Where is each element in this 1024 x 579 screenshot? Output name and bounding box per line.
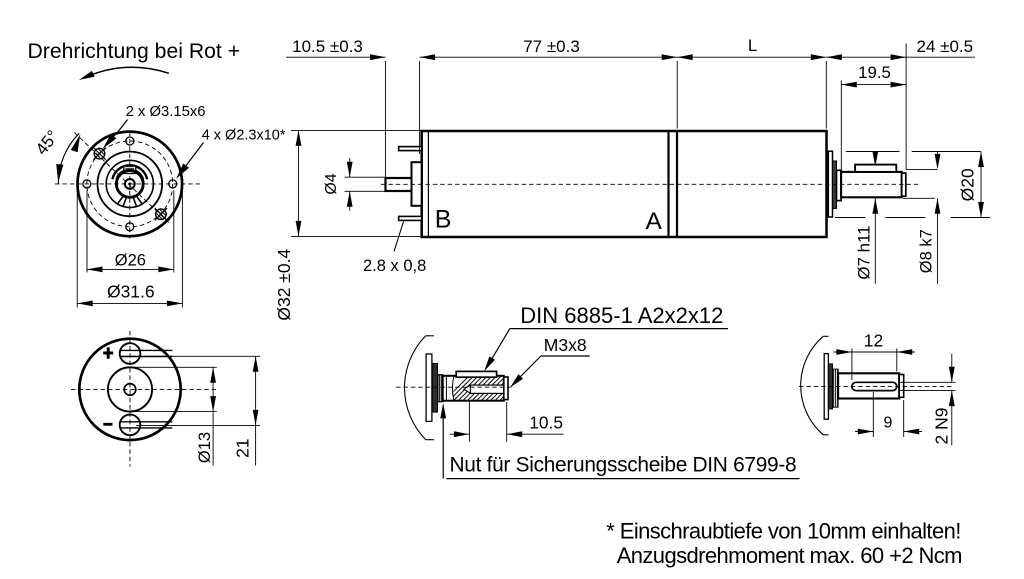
svg-text:2 N9: 2 N9 [932, 408, 952, 445]
svg-text:4 x Ø2.3x10*: 4 x Ø2.3x10* [202, 128, 286, 144]
svg-text:10.5 ±0.3: 10.5 ±0.3 [292, 37, 363, 56]
svg-text:24 ±0.5: 24 ±0.5 [916, 37, 973, 56]
svg-text:DIN 6885-1 A2x2x12: DIN 6885-1 A2x2x12 [520, 303, 723, 328]
svg-text:19.5: 19.5 [858, 63, 891, 82]
svg-text:2 x Ø3.15x6: 2 x Ø3.15x6 [126, 104, 206, 120]
svg-text:Ø31.6: Ø31.6 [107, 281, 155, 301]
svg-text:B: B [435, 205, 452, 233]
svg-text:Ø13: Ø13 [196, 432, 214, 463]
svg-text:12: 12 [864, 330, 883, 350]
svg-text:* Einschraubtiefe von 10mm ein: * Einschraubtiefe von 10mm einhalten! [606, 519, 960, 544]
svg-text:Ø8 k7: Ø8 k7 [918, 229, 936, 273]
svg-text:Ø4: Ø4 [323, 173, 340, 194]
svg-text:9: 9 [884, 415, 893, 432]
svg-text:Ø20: Ø20 [958, 168, 978, 201]
svg-text:Anzugsdrehmoment max. 60 +2 Nc: Anzugsdrehmoment max. 60 +2 Ncm [617, 543, 962, 568]
svg-text:Ø32 ±0.4: Ø32 ±0.4 [274, 248, 294, 320]
svg-text:Ø7 h11: Ø7 h11 [855, 225, 874, 279]
svg-text:L: L [748, 36, 757, 55]
svg-text:M3x8: M3x8 [544, 335, 587, 355]
svg-text:10.5: 10.5 [529, 413, 563, 433]
svg-text:Ø26: Ø26 [115, 251, 146, 269]
svg-text:21: 21 [233, 438, 253, 457]
svg-text:77 ±0.3: 77 ±0.3 [523, 37, 580, 56]
svg-text:2.8 x 0,8: 2.8 x 0,8 [363, 257, 426, 275]
svg-text:Drehrichtung bei Rot +: Drehrichtung bei Rot + [28, 40, 241, 63]
svg-text:A: A [646, 208, 663, 235]
svg-text:Nut für Sicherungsscheibe DIN: Nut für Sicherungsscheibe DIN 6799-8 [450, 454, 797, 477]
